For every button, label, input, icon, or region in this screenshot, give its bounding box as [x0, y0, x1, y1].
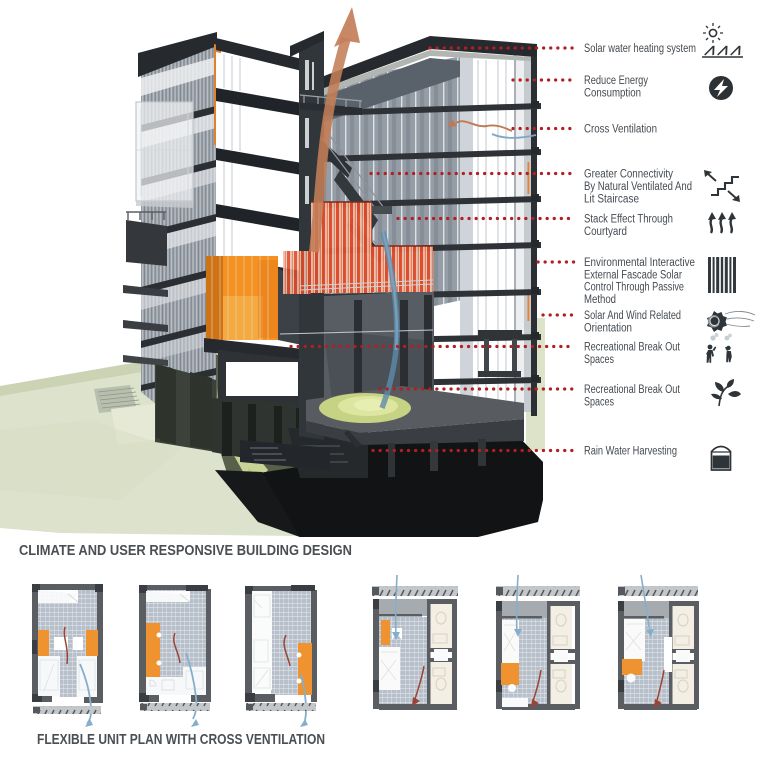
svg-text:CLIMATE AND USER RESPONSIVE BU: CLIMATE AND USER RESPONSIVE BUILDING DES…	[19, 543, 352, 559]
svg-text:Method: Method	[584, 294, 616, 306]
svg-text:Greater Connectivity: Greater Connectivity	[584, 169, 673, 181]
svg-text:Courtyard: Courtyard	[584, 226, 627, 238]
svg-text:Control Through Passive: Control Through Passive	[584, 282, 684, 294]
svg-text:By Natural Ventilated And: By Natural Ventilated And	[584, 181, 692, 193]
svg-text:Environmental Interactive: Environmental Interactive	[584, 257, 695, 269]
svg-text:FLEXIBLE UNIT PLAN WITH CROSS: FLEXIBLE UNIT PLAN WITH CROSS VENTILATIO…	[37, 732, 325, 748]
svg-text:Consumption: Consumption	[584, 88, 641, 100]
svg-text:Solar water heating system: Solar water heating system	[584, 43, 696, 55]
svg-text:Spaces: Spaces	[584, 354, 614, 366]
svg-text:External Fascade Solar: External Fascade Solar	[584, 269, 682, 281]
svg-text:Solar And Wind Related: Solar And Wind Related	[584, 310, 681, 322]
svg-text:Orientation: Orientation	[584, 323, 632, 335]
svg-text:Spaces: Spaces	[584, 397, 614, 409]
svg-text:Rain Water Harvesting: Rain Water Harvesting	[584, 446, 677, 458]
svg-text:Lit Staircase: Lit Staircase	[584, 194, 639, 206]
svg-text:Cross Ventilation: Cross Ventilation	[584, 124, 657, 136]
svg-text:Recreational Break Out: Recreational Break Out	[584, 342, 681, 354]
svg-text:Recreational Break Out: Recreational Break Out	[584, 384, 681, 396]
svg-text:Reduce Energy: Reduce Energy	[584, 75, 648, 87]
svg-text:Stack Effect Through: Stack Effect Through	[584, 214, 673, 226]
